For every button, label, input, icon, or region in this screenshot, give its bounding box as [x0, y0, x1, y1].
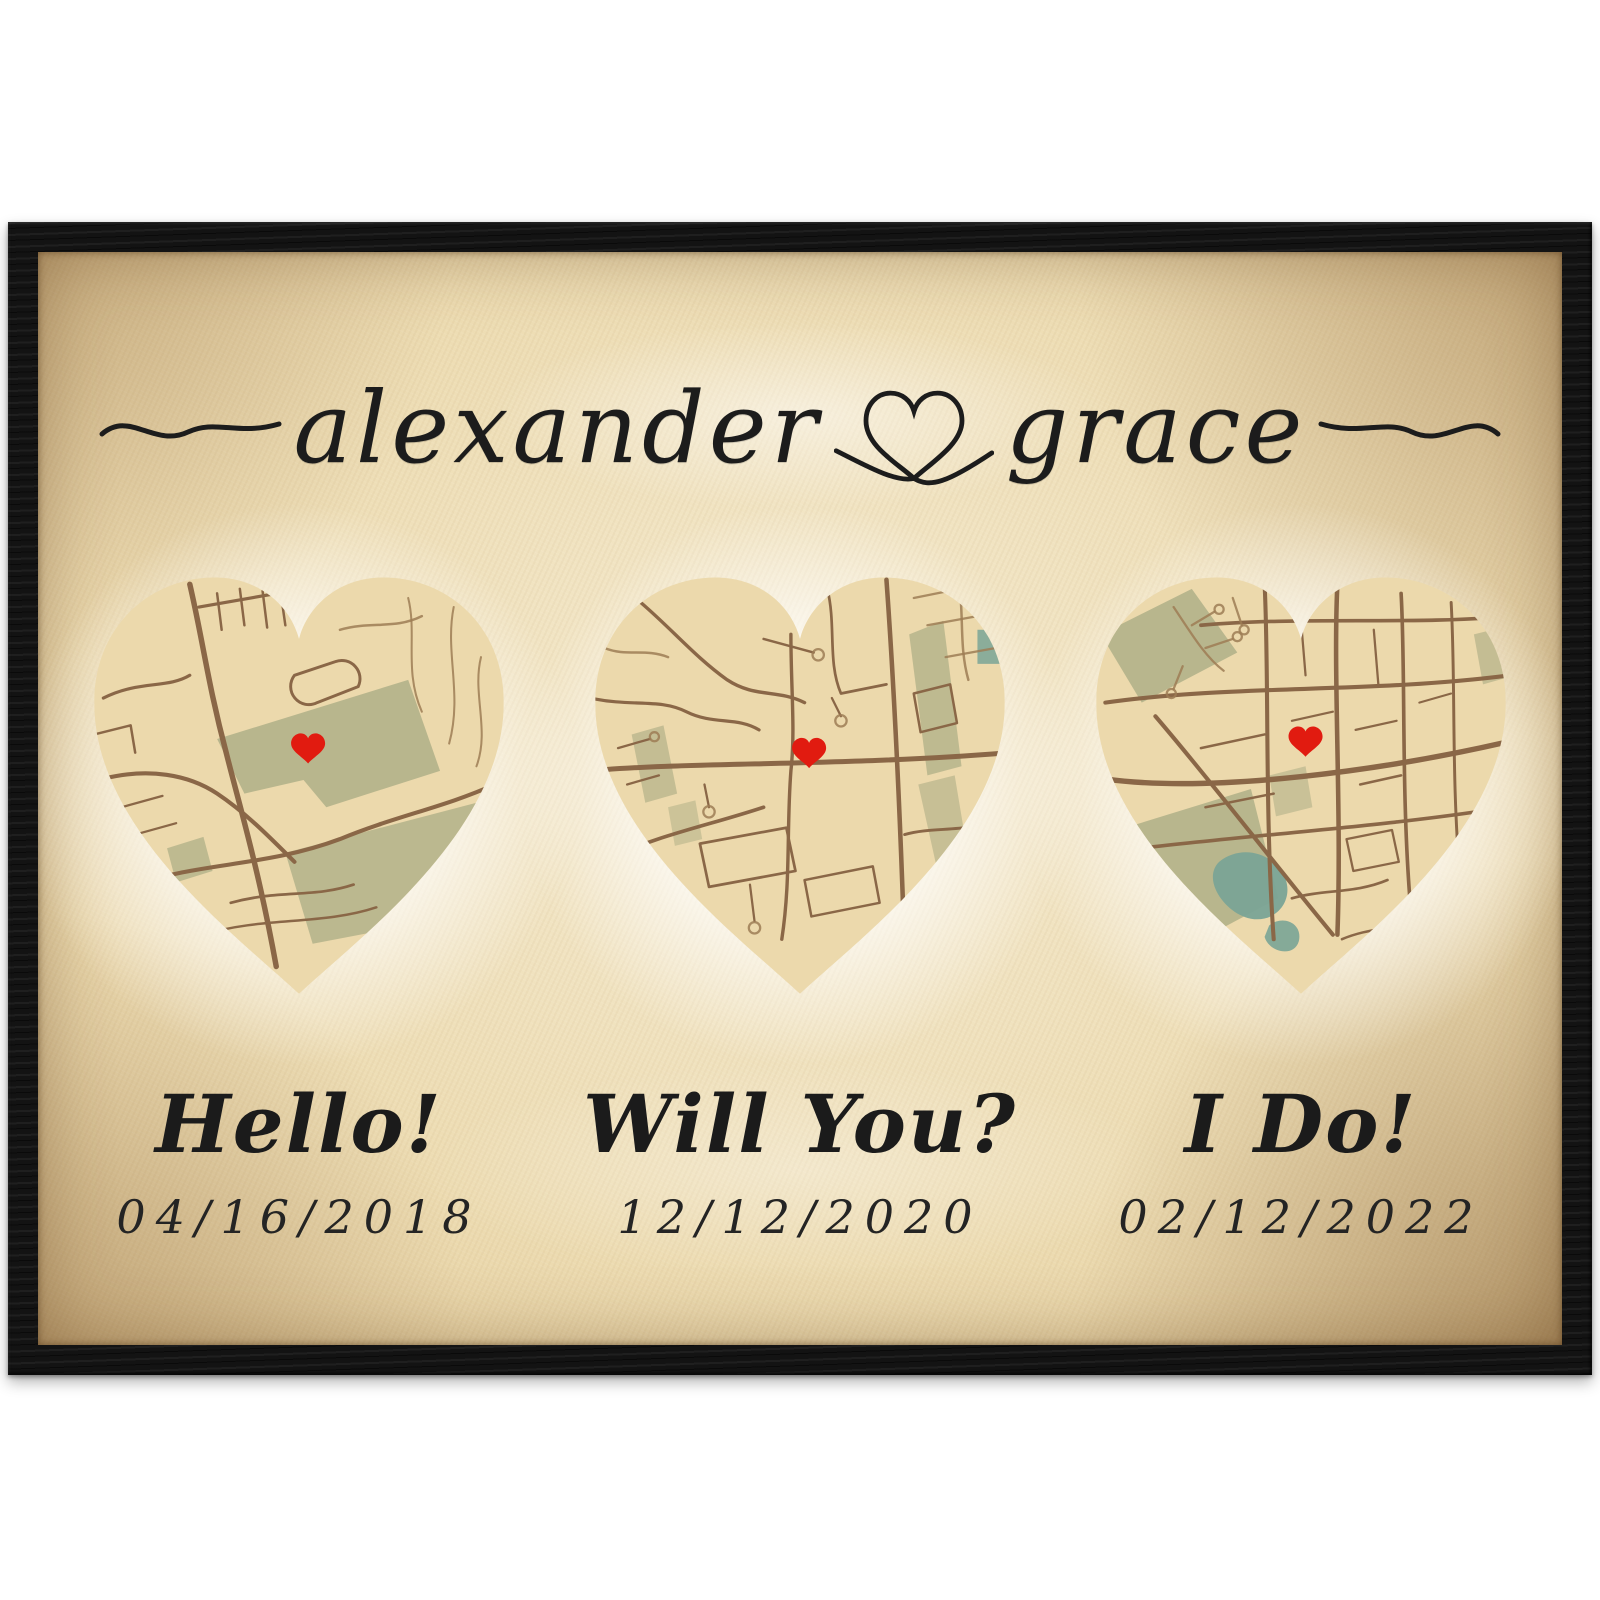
couple-names-title: alexander grace	[38, 344, 1562, 514]
milestone-date: 02/12/2022	[1118, 1194, 1483, 1240]
flourish-right-icon	[1317, 394, 1502, 464]
milestone-date: 04/16/2018	[116, 1194, 481, 1240]
heart-map-will-you-svg	[570, 557, 1030, 1012]
heart-divider-icon	[834, 380, 994, 498]
name-right: grace	[1006, 380, 1307, 478]
heart-map-will-you	[570, 557, 1030, 1012]
milestone-column-will-you: Will You? 12/12/2020	[560, 557, 1040, 1240]
milestone-label: I Do!	[1184, 1084, 1417, 1164]
heart-map-i-do-svg	[1071, 557, 1531, 1012]
map-base	[573, 557, 1028, 1012]
milestone-label: Will You?	[583, 1084, 1017, 1164]
milestone-date: 12/12/2020	[617, 1194, 982, 1240]
flourish-left-icon	[98, 394, 283, 464]
map-base	[72, 557, 527, 1012]
name-left: alexander	[293, 380, 821, 478]
heart-map-hello	[69, 557, 529, 1012]
heart-map-i-do	[1071, 557, 1531, 1012]
milestone-column-i-do: I Do! 02/12/2022	[1061, 557, 1541, 1240]
milestone-column-hello: Hello! 04/16/2018	[59, 557, 539, 1240]
map-poster: alexander grace	[38, 252, 1562, 1345]
map-water	[977, 630, 1007, 664]
heart-maps-row: Hello! 04/16/2018	[38, 557, 1562, 1240]
heart-map-hello-svg	[69, 557, 529, 1012]
milestone-label: Hello!	[155, 1084, 443, 1164]
picture-frame: alexander grace	[8, 222, 1592, 1375]
map-water	[495, 780, 515, 848]
product-photo: { "poster": { "couple": { "name_left": "…	[0, 0, 1600, 1600]
